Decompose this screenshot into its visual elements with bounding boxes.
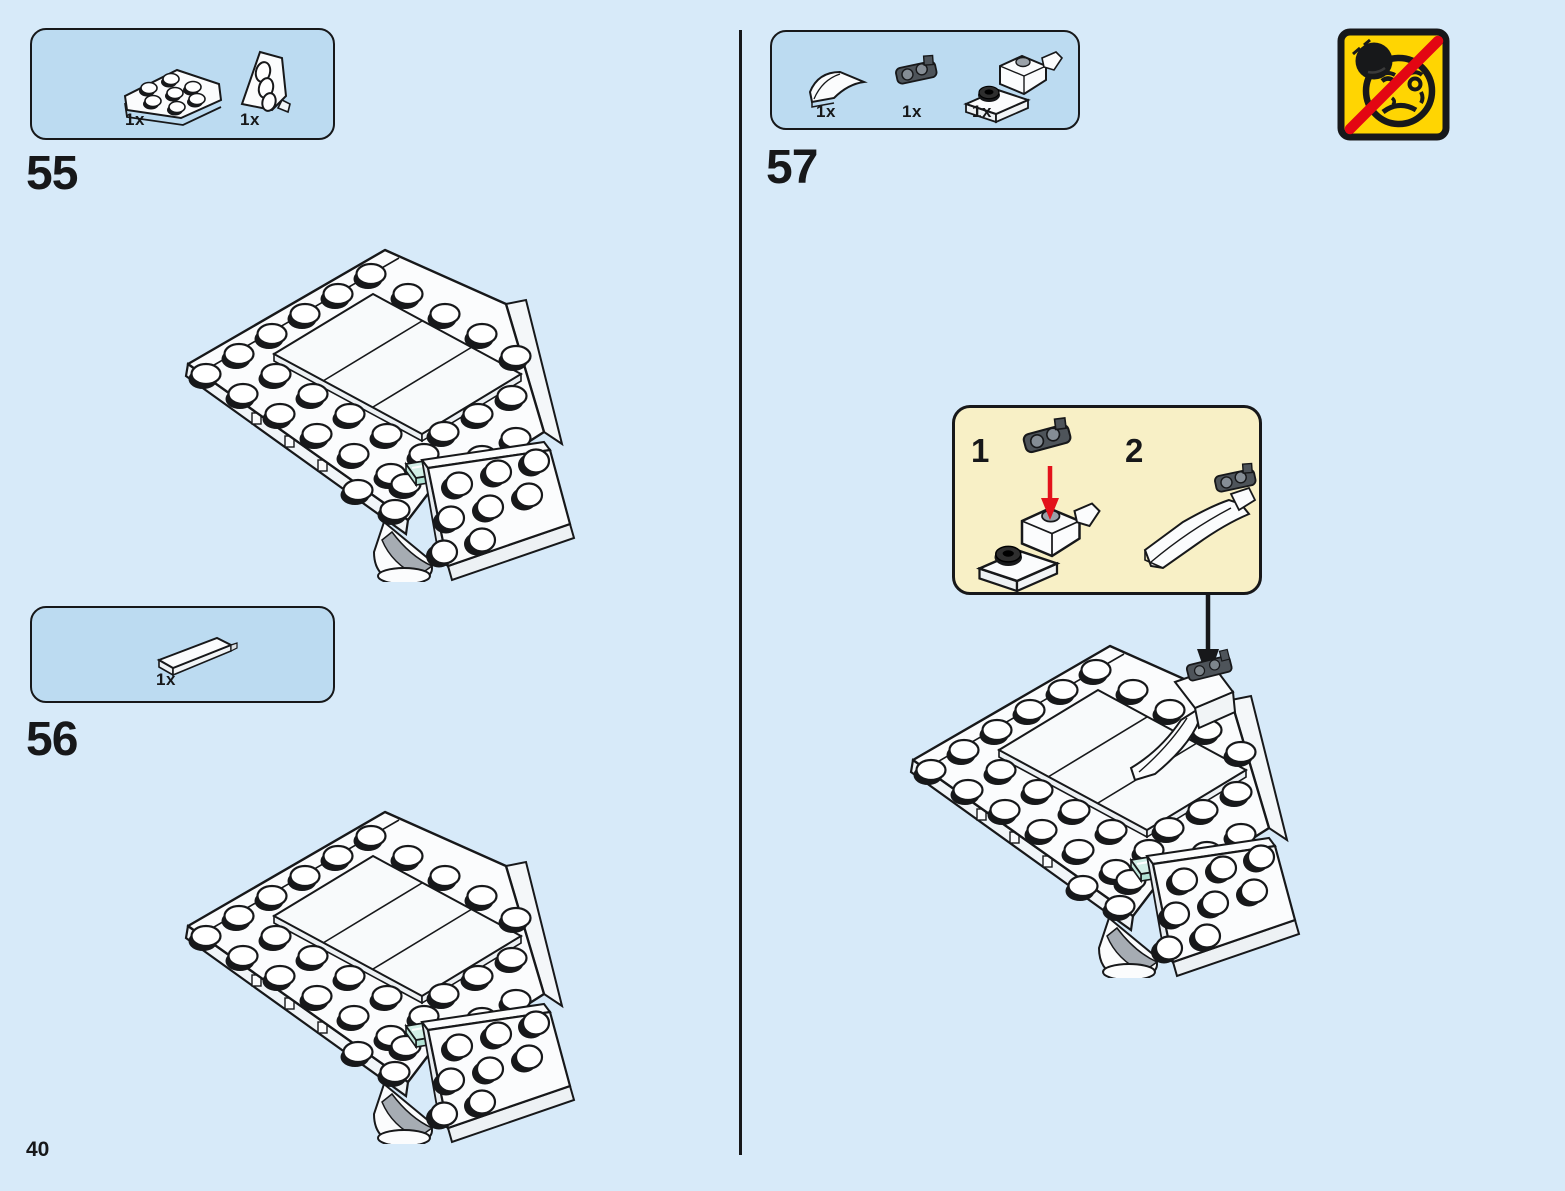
dark-clip-icon (894, 54, 938, 84)
part-count: 1x (156, 670, 176, 690)
part-count: 1x (125, 110, 145, 130)
wedge-plate-right-icon (242, 52, 290, 112)
parts-box-55: 1x 1x (30, 28, 335, 140)
substep-callout: 1 2 (952, 405, 1262, 595)
do-not-drop-warning-icon (1337, 28, 1450, 141)
part-count: 1x (972, 102, 992, 122)
page-number: 40 (26, 1138, 49, 1162)
step-56-assembly-illustration (178, 784, 578, 1144)
parts-55-art (32, 30, 332, 139)
parts-box-56: 1x (30, 606, 335, 703)
parts-56-art (32, 608, 332, 702)
step-55-assembly-illustration (178, 222, 578, 582)
column-divider (739, 30, 742, 1155)
part-count: 1x (902, 102, 922, 122)
substep2-art (1145, 462, 1256, 568)
step-number-57: 57 (766, 140, 817, 195)
parts-box-57: 1x 1x 1x (770, 30, 1080, 130)
part-count: 1x (240, 110, 260, 130)
part-count: 1x (816, 102, 836, 122)
substep1-art (980, 416, 1100, 591)
step-number-55: 55 (26, 146, 77, 201)
step-number-56: 56 (26, 712, 77, 767)
substep-art (955, 408, 1259, 592)
lego-instruction-page: { "page_number": "40", "colors": { "back… (0, 0, 1565, 1191)
step-57-assembly-illustration (903, 618, 1303, 978)
